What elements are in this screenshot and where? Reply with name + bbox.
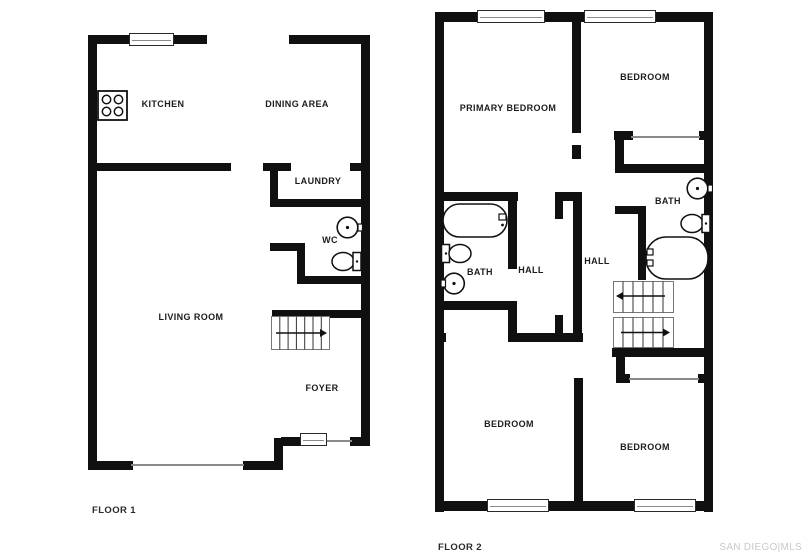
sink-icon — [440, 271, 467, 296]
opening-line — [631, 136, 700, 138]
wall-segment — [574, 378, 583, 510]
wall-segment — [88, 461, 133, 470]
room-label-living-room: LIVING ROOM — [159, 312, 224, 322]
window — [477, 10, 545, 23]
wall-segment — [572, 145, 581, 159]
wall-segment — [270, 199, 367, 207]
toilet-icon — [331, 251, 362, 272]
wall-segment — [572, 12, 581, 133]
bathtub-icon — [645, 236, 709, 280]
window — [487, 499, 549, 512]
wall-segment — [88, 163, 231, 171]
room-label-bedroom-bottom-left: BEDROOM — [484, 419, 534, 429]
wall-segment — [361, 35, 370, 445]
room-label-bedroom-bottom-right: BEDROOM — [620, 442, 670, 452]
room-label-bath-left: BATH — [467, 267, 493, 277]
sink-icon — [336, 215, 363, 240]
window — [584, 10, 656, 23]
sink-icon — [686, 176, 713, 201]
room-label-bath-right: BATH — [655, 196, 681, 206]
staircase-floor1 — [271, 316, 331, 351]
opening-line — [629, 378, 699, 380]
floor1-title: FLOOR 1 — [92, 505, 136, 516]
room-label-laundry: LAUNDRY — [295, 176, 341, 186]
toilet-icon — [440, 243, 472, 264]
opening-line — [131, 464, 244, 466]
room-label-kitchen: KITCHEN — [142, 99, 185, 109]
wall-segment — [698, 374, 713, 383]
wall-segment — [289, 35, 370, 44]
mls-watermark: SAN DIEGO|MLS — [719, 542, 802, 553]
wall-segment — [573, 192, 582, 342]
bathtub-icon — [442, 203, 509, 238]
wall-segment — [170, 35, 207, 44]
wall-segment — [350, 437, 370, 446]
stove-icon — [97, 90, 128, 121]
wall-segment — [555, 192, 563, 219]
wall-segment — [435, 333, 446, 342]
staircase-floor2 — [613, 281, 675, 349]
wall-segment — [435, 301, 517, 310]
wall-segment — [508, 333, 583, 342]
floor2-title: FLOOR 2 — [438, 542, 482, 553]
wall-segment — [615, 164, 713, 173]
wall-segment — [435, 192, 518, 201]
room-label-primary-bedroom: PRIMARY BEDROOM — [460, 103, 557, 113]
wall-segment — [555, 315, 563, 342]
window — [129, 33, 174, 46]
window — [634, 499, 696, 512]
entry-door — [300, 433, 327, 446]
wall-segment — [88, 35, 97, 470]
wall-segment — [297, 276, 367, 284]
wall-segment — [350, 163, 370, 171]
wall-segment — [699, 131, 713, 140]
floorplan-image: KITCHEN DINING AREA LAUNDRY WC LIVING RO… — [0, 0, 809, 560]
wall-segment — [612, 348, 713, 357]
room-label-foyer: FOYER — [305, 383, 338, 393]
room-label-bedroom-top-right: BEDROOM — [620, 72, 670, 82]
room-label-hall-left: HALL — [518, 265, 544, 275]
opening-line — [326, 440, 352, 442]
room-label-dining-area: DINING AREA — [265, 99, 329, 109]
wall-segment — [281, 437, 302, 446]
room-label-hall-right: HALL — [584, 256, 610, 266]
toilet-icon — [680, 213, 711, 234]
wall-segment — [508, 192, 517, 269]
room-label-wc: WC — [322, 235, 338, 245]
wall-segment — [616, 374, 630, 383]
